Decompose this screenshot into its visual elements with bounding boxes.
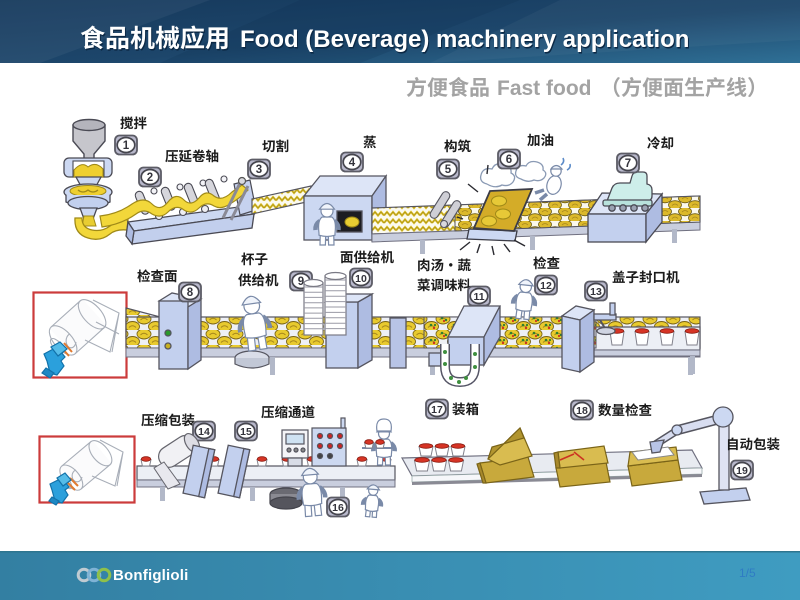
svg-text:1: 1: [123, 140, 130, 152]
svg-text:14: 14: [198, 426, 210, 438]
svg-text:Food (Beverage) machinery appl: Food (Beverage) machinery application: [240, 26, 689, 53]
svg-text:6: 6: [506, 154, 512, 166]
svg-text:17: 17: [431, 404, 443, 416]
svg-text:13: 13: [590, 286, 602, 298]
svg-text:7: 7: [625, 158, 631, 170]
svg-text:Bonfiglioli: Bonfiglioli: [113, 567, 189, 584]
svg-text:Fast food: Fast food: [497, 77, 592, 100]
svg-text:1/5: 1/5: [739, 566, 756, 580]
svg-text:16: 16: [332, 502, 344, 514]
svg-text:15: 15: [240, 426, 252, 438]
svg-text:12: 12: [540, 280, 552, 292]
svg-text:11: 11: [473, 291, 484, 303]
svg-text:3: 3: [256, 164, 262, 176]
svg-text:9: 9: [298, 276, 304, 288]
svg-text:5: 5: [445, 164, 452, 176]
svg-text:19: 19: [736, 465, 748, 477]
svg-text:8: 8: [187, 287, 194, 299]
svg-text:10: 10: [355, 273, 367, 285]
svg-text:4: 4: [349, 157, 356, 169]
svg-text:2: 2: [147, 172, 153, 184]
svg-text:18: 18: [576, 405, 588, 417]
